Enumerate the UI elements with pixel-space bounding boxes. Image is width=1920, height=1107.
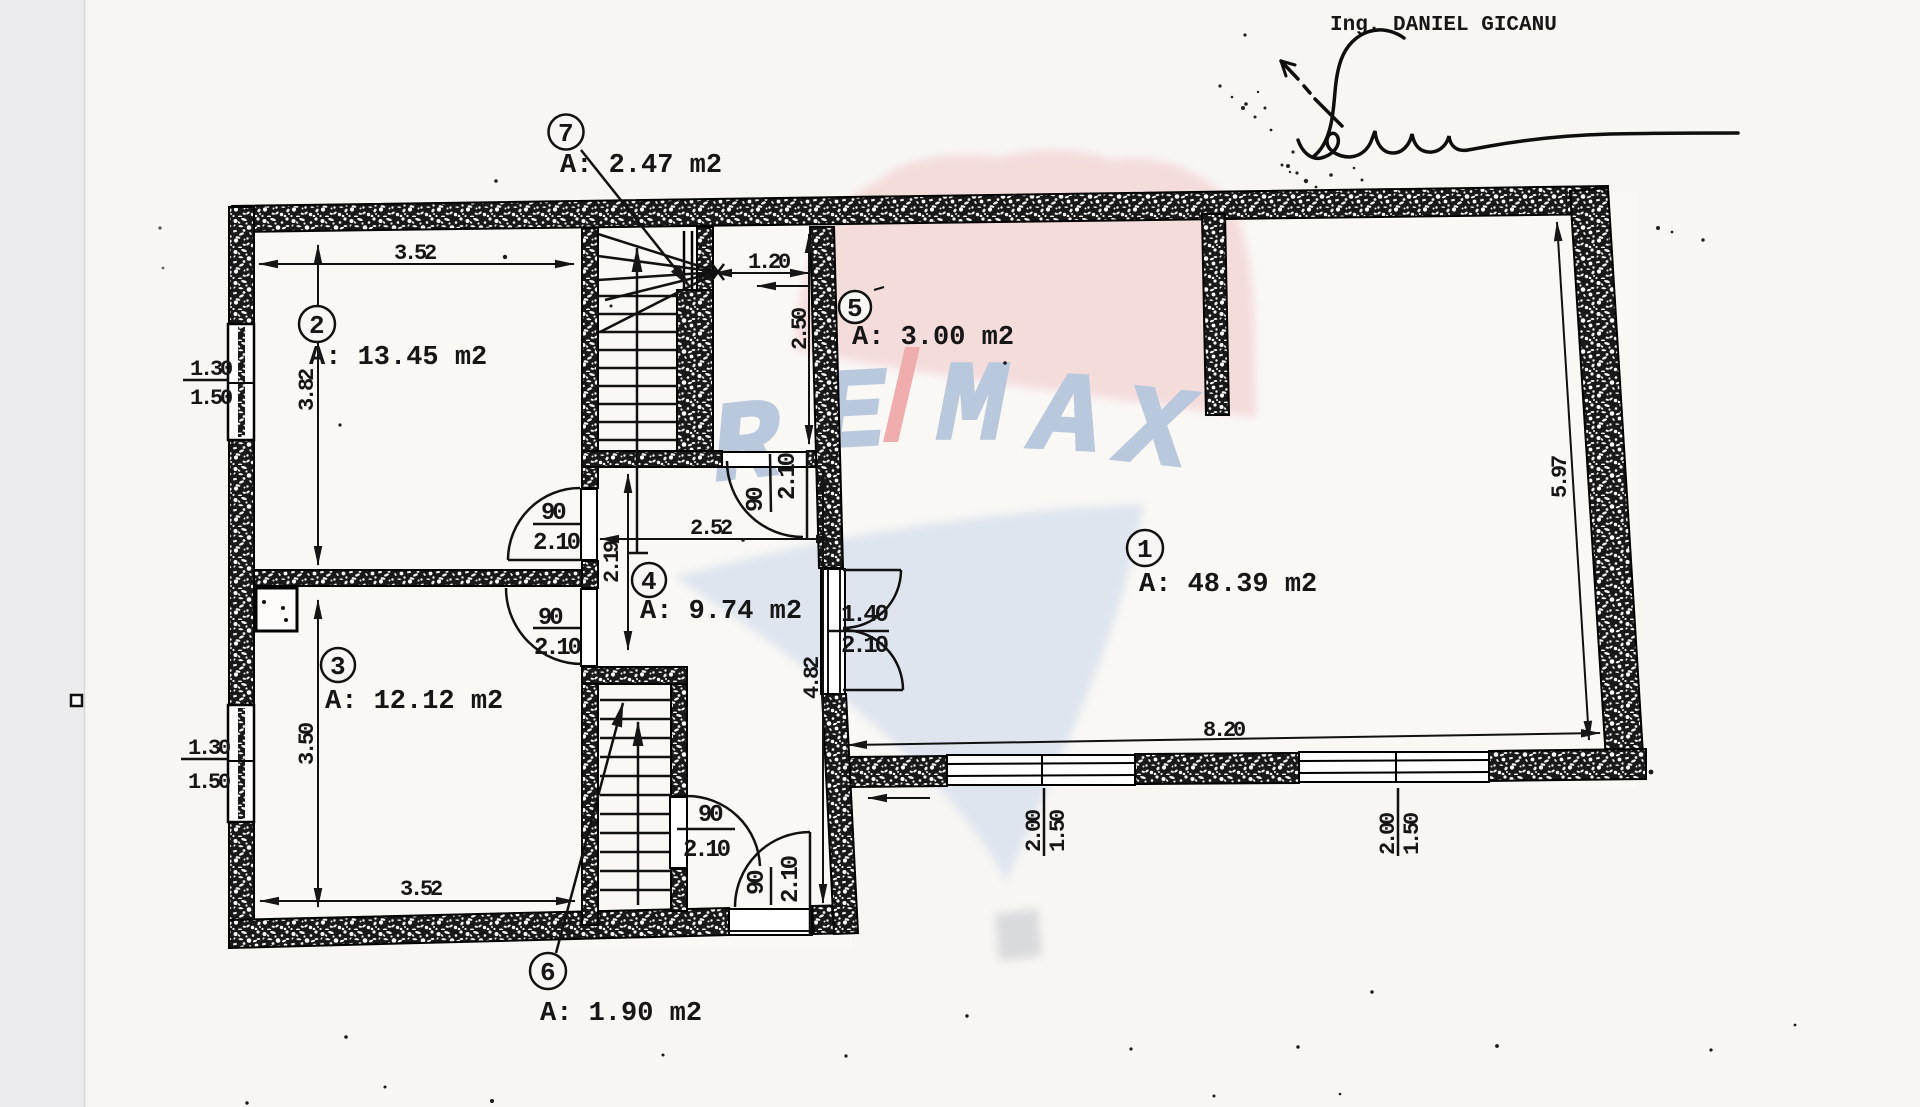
svg-text:1.50: 1.50 — [1400, 813, 1425, 855]
svg-text:2.52: 2.52 — [690, 516, 732, 541]
svg-text:8.20: 8.20 — [1203, 718, 1245, 743]
svg-text:6: 6 — [540, 958, 556, 988]
svg-text:1.30: 1.30 — [188, 736, 230, 761]
svg-text:A: 1.90 m2: A: 1.90 m2 — [540, 999, 702, 1029]
svg-text:2.10: 2.10 — [775, 452, 802, 500]
svg-text:2.10: 2.10 — [533, 530, 581, 557]
svg-text:5.97: 5.97 — [1548, 456, 1573, 498]
svg-text:2.19: 2.19 — [600, 541, 625, 583]
svg-text:7: 7 — [558, 119, 574, 149]
svg-text:M: M — [937, 345, 1009, 472]
svg-text:1: 1 — [1137, 535, 1153, 565]
svg-text:2.10: 2.10 — [534, 635, 582, 662]
svg-text:2.10: 2.10 — [841, 633, 889, 660]
svg-text:A: 9.74 m2: A: 9.74 m2 — [640, 597, 802, 627]
svg-text:2.10: 2.10 — [778, 855, 805, 903]
svg-text:3.50: 3.50 — [295, 723, 320, 765]
svg-text:5: 5 — [847, 294, 863, 324]
svg-text:A: 48.39 m2: A: 48.39 m2 — [1139, 570, 1317, 600]
svg-text:A: 12.12 m2: A: 12.12 m2 — [325, 687, 503, 717]
svg-text:1.40: 1.40 — [841, 602, 889, 629]
svg-text:90: 90 — [698, 802, 723, 829]
svg-text:A: A — [1024, 354, 1104, 485]
svg-text:2: 2 — [309, 311, 325, 341]
svg-text:2.10: 2.10 — [683, 837, 731, 864]
svg-text:1.50: 1.50 — [188, 770, 230, 795]
svg-text:90: 90 — [743, 487, 770, 512]
svg-text:3: 3 — [330, 652, 346, 682]
svg-text:1.50: 1.50 — [190, 386, 232, 411]
svg-text:4: 4 — [641, 567, 657, 597]
svg-text:3.52: 3.52 — [400, 877, 442, 902]
svg-text:A: 3.00 m2: A: 3.00 m2 — [852, 323, 1014, 353]
svg-text:A: 13.45 m2: A: 13.45 m2 — [309, 343, 487, 373]
svg-text:1.50: 1.50 — [1046, 810, 1071, 852]
svg-text:1.30: 1.30 — [190, 357, 232, 382]
svg-text:3.52: 3.52 — [394, 241, 436, 266]
svg-text:1.20: 1.20 — [748, 250, 790, 275]
svg-text:3.82: 3.82 — [295, 369, 320, 411]
svg-text:2.50: 2.50 — [788, 308, 813, 350]
svg-text:90: 90 — [744, 870, 771, 895]
svg-text:4.82: 4.82 — [800, 657, 825, 699]
